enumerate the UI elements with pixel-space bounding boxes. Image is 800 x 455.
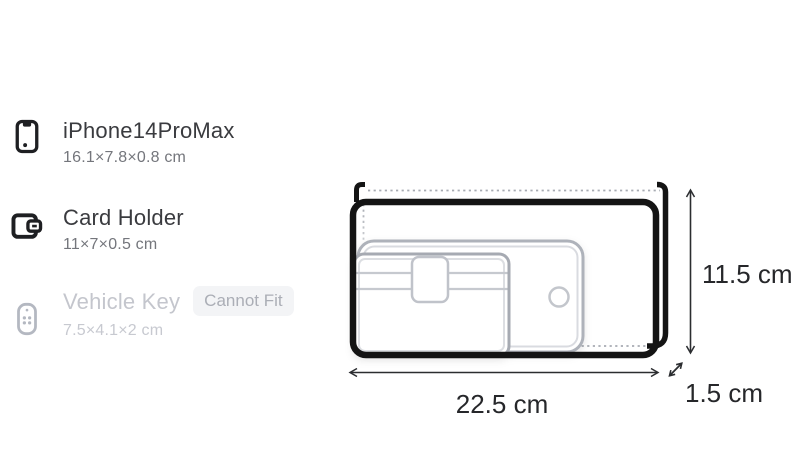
bag-width-label: 22.5 cm: [456, 389, 549, 419]
bag-depth-label: 1.5 cm: [685, 378, 763, 408]
card-holder-ghost: [354, 254, 509, 356]
depth-arrow: [670, 363, 682, 376]
bag-height-label: 11.5 cm: [702, 259, 793, 289]
bag-diagram: 22.5 cm 11.5 cm 1.5 cm: [0, 0, 800, 455]
